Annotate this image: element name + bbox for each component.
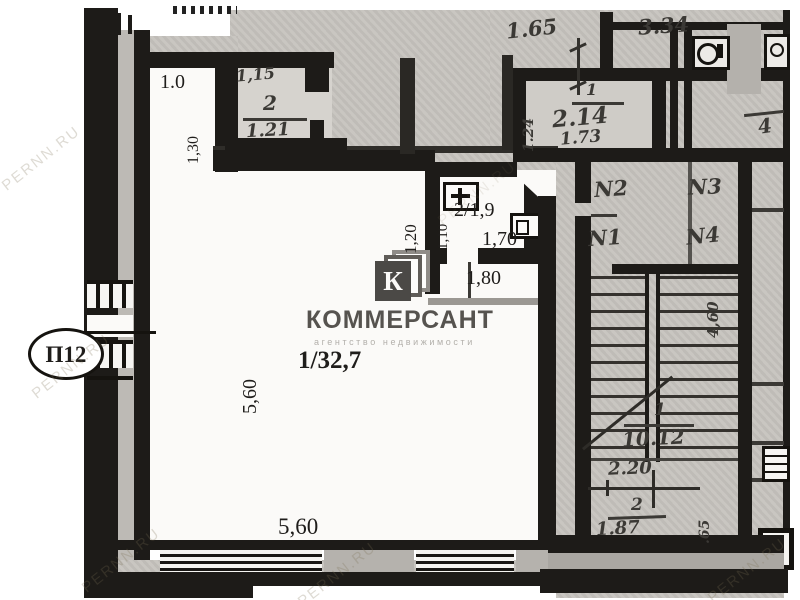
wc-room-label: 2/1,9 [454, 200, 495, 220]
room187-number-label: 2 [631, 497, 643, 514]
main-width-label: 5,60 [278, 515, 318, 538]
stair-width-label: 4,60 [706, 280, 721, 338]
room214-depth-label: 1.24 [522, 96, 536, 152]
wall-hall-left-lower [575, 216, 591, 569]
room4-number-label: 4 [757, 115, 774, 137]
sink-icon [764, 34, 790, 70]
site-watermark: PERNN.RU [0, 123, 84, 194]
room121-width-label: 1,15 [235, 65, 275, 84]
wc-offset-label: 1,20 [402, 186, 419, 254]
wc-depth-label: 1,10 [436, 192, 451, 250]
niche-width-label: 1.0 [160, 72, 185, 92]
dim-tick [652, 470, 655, 508]
dashed-mark-row [173, 6, 237, 14]
wc-width-label: 1,70 [482, 229, 517, 249]
wall-stair-top [612, 264, 738, 274]
main-room-label: 1/32,7 [298, 348, 361, 373]
wall-room121-jamb [310, 120, 324, 144]
door-n2-label: N2 [593, 177, 628, 200]
landing-number-label: 1 [654, 402, 666, 419]
wall-main-right [538, 196, 556, 569]
vent-tick [117, 13, 121, 35]
window-icon [160, 550, 322, 572]
divider-line [752, 208, 784, 212]
sink-basin [516, 220, 529, 235]
niche-depth-label: 1,30 [186, 110, 202, 164]
room214-number-label: 1 [586, 82, 597, 98]
wall-double-a [670, 22, 678, 162]
main-depth-label: 5,60 [240, 352, 260, 414]
logo-square: К [375, 261, 411, 301]
wall-vertical-a [400, 58, 415, 154]
wall-bottom-right-a [548, 535, 784, 553]
wall-stairwell-right [738, 158, 752, 560]
divider-line [752, 441, 784, 445]
wall-far-right-edge [783, 10, 790, 570]
door-n1-label: N1 [587, 226, 622, 249]
wall-vertical-c [600, 12, 613, 72]
window-panes [87, 284, 133, 308]
divider-line [752, 382, 784, 386]
wall-hall-left-upper [575, 162, 591, 203]
toilet-icon [692, 36, 730, 70]
dim-line [588, 487, 700, 490]
wall-faint-line [428, 298, 556, 305]
door-n4-label: N4 [685, 223, 721, 247]
vent-tick [128, 15, 132, 34]
door-leaf-n1 [591, 214, 617, 217]
room121-number-label: 2 [263, 93, 277, 113]
dim-220-label: 2.20 [608, 459, 652, 479]
agency-brand: КОММЕРСАНТ [306, 306, 506, 335]
dim-tick [606, 480, 609, 496]
radiator-icon [762, 446, 790, 482]
vent-tick [106, 13, 110, 35]
wall-room121-bottom [225, 138, 347, 154]
wall-double-b [684, 22, 692, 162]
room187-area-label: 1.87 [596, 519, 641, 539]
wall-bottom-bar-left [95, 586, 253, 598]
logo-letter: К [383, 266, 403, 297]
dim-165-label: 1.65 [505, 15, 558, 41]
floor-plan-scan: П12 PERNN.RU PERNN.RU PERNN.RU PERNN.RU … [0, 0, 800, 600]
agency-subtitle: агентство недвижимости [314, 337, 514, 347]
room121-area-label: 1.21 [246, 121, 291, 141]
wall-left-inner [134, 30, 150, 560]
agency-logo: К [370, 250, 440, 306]
toilet-bowl [697, 43, 719, 65]
window-icon [87, 280, 133, 320]
dim-065-label: .65 [698, 498, 712, 544]
wall-room121-pillar [305, 52, 329, 92]
wc-door-label: 1,80 [466, 268, 501, 288]
window-icon [416, 550, 514, 572]
wall-pillar-topright [727, 24, 761, 94]
dim-334-label: 3.34 [637, 13, 689, 38]
toilet-tank [717, 44, 723, 58]
sink-basin [770, 43, 784, 57]
landing-area-label: 10.12 [622, 426, 686, 449]
wall-vertical-b [502, 55, 513, 150]
door-n3-label: N3 [688, 175, 723, 197]
room214-width-label: 1.73 [559, 128, 602, 149]
